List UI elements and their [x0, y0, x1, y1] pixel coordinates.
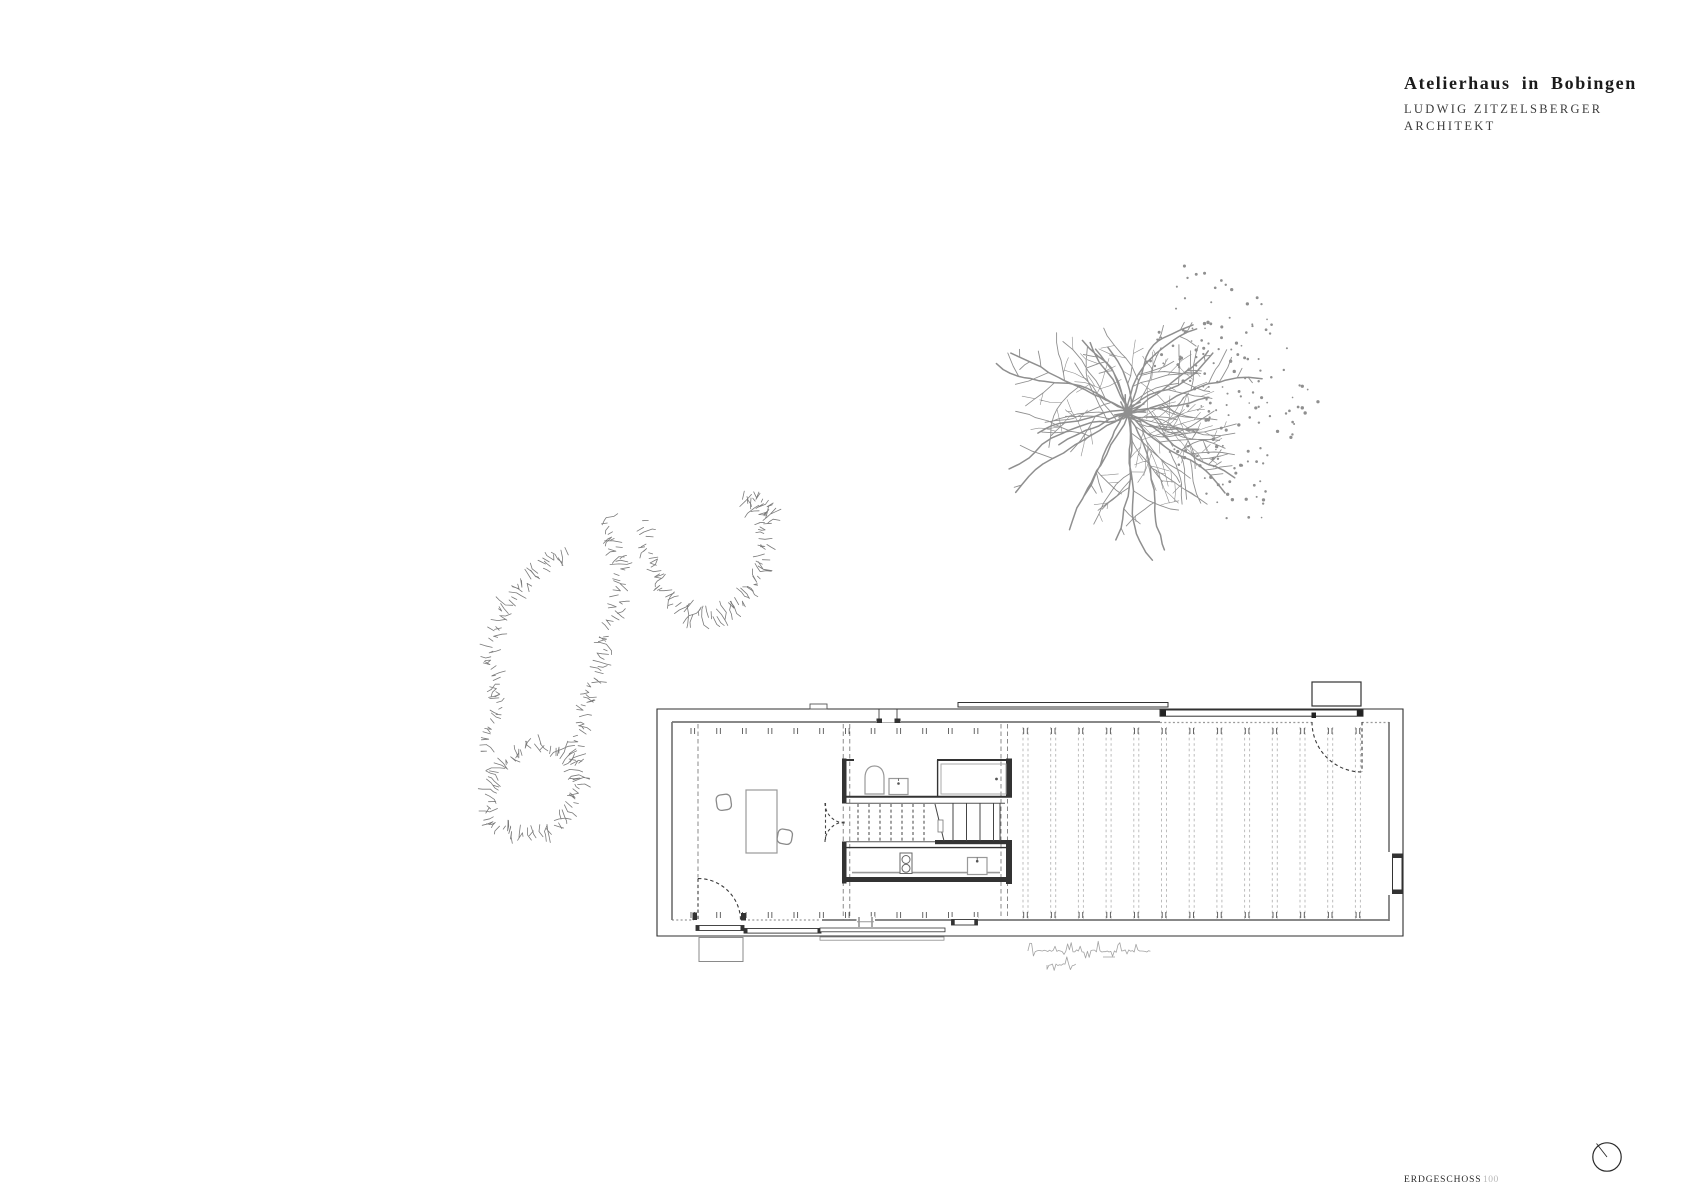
tree-canopy — [996, 264, 1319, 560]
double-door-stair — [825, 803, 845, 842]
east-wall-window — [1393, 854, 1403, 894]
shrub-right — [637, 491, 781, 629]
wc-room — [941, 764, 1006, 794]
architect-name: LUDWIG ZITZELSBERGER — [1404, 102, 1602, 117]
pencil-note — [1028, 941, 1150, 970]
floor-plan-drawing — [0, 0, 1707, 1200]
facade-lintel — [820, 928, 945, 932]
shrub-left — [478, 514, 632, 844]
north-wall-marker — [810, 704, 827, 709]
exterior-step-edge — [820, 937, 944, 940]
scale-value: 100 — [1483, 1175, 1499, 1185]
studio-furniture — [716, 790, 794, 853]
chair — [776, 828, 793, 845]
entrance-door-northeast — [1312, 722, 1362, 772]
kitchen-counter — [846, 848, 1012, 875]
architect-role: ARCHITEKT — [1404, 119, 1496, 134]
roof-overhang-line — [958, 703, 1168, 708]
north-circle-icon — [1593, 1143, 1621, 1171]
washbasin — [889, 779, 908, 795]
desk — [746, 790, 777, 853]
glass-dotted-lines — [672, 723, 1389, 921]
drawing-label: ERDGESCHOSS — [1404, 1175, 1481, 1185]
south-wall-vent — [857, 917, 876, 928]
kitchen-sink — [968, 858, 988, 875]
entry-canopy — [1312, 682, 1361, 706]
site-planting — [478, 264, 1319, 843]
building-plan — [657, 682, 1403, 962]
service-core — [825, 759, 1012, 885]
south-wall-window — [951, 917, 978, 928]
exterior-pad — [699, 938, 743, 962]
north-window-band — [1160, 710, 1363, 718]
chair — [716, 794, 733, 811]
inner-walls — [672, 722, 1389, 921]
bathtub — [865, 766, 884, 794]
sliding-door-rails — [696, 926, 821, 934]
grid-axes — [698, 724, 1008, 920]
facade-ticks — [691, 728, 1360, 918]
north-wall-door — [876, 710, 901, 724]
annotations — [1028, 941, 1621, 1171]
entrance-door-southwest — [693, 879, 747, 921]
stove — [900, 853, 912, 874]
floorboard-lines — [1023, 727, 1360, 919]
drawing-sheet: Atelierhaus in Bobingen LUDWIG ZITZELSBE… — [0, 0, 1707, 1200]
staircase — [858, 803, 1000, 841]
page-title: Atelierhaus in Bobingen — [1404, 73, 1637, 94]
